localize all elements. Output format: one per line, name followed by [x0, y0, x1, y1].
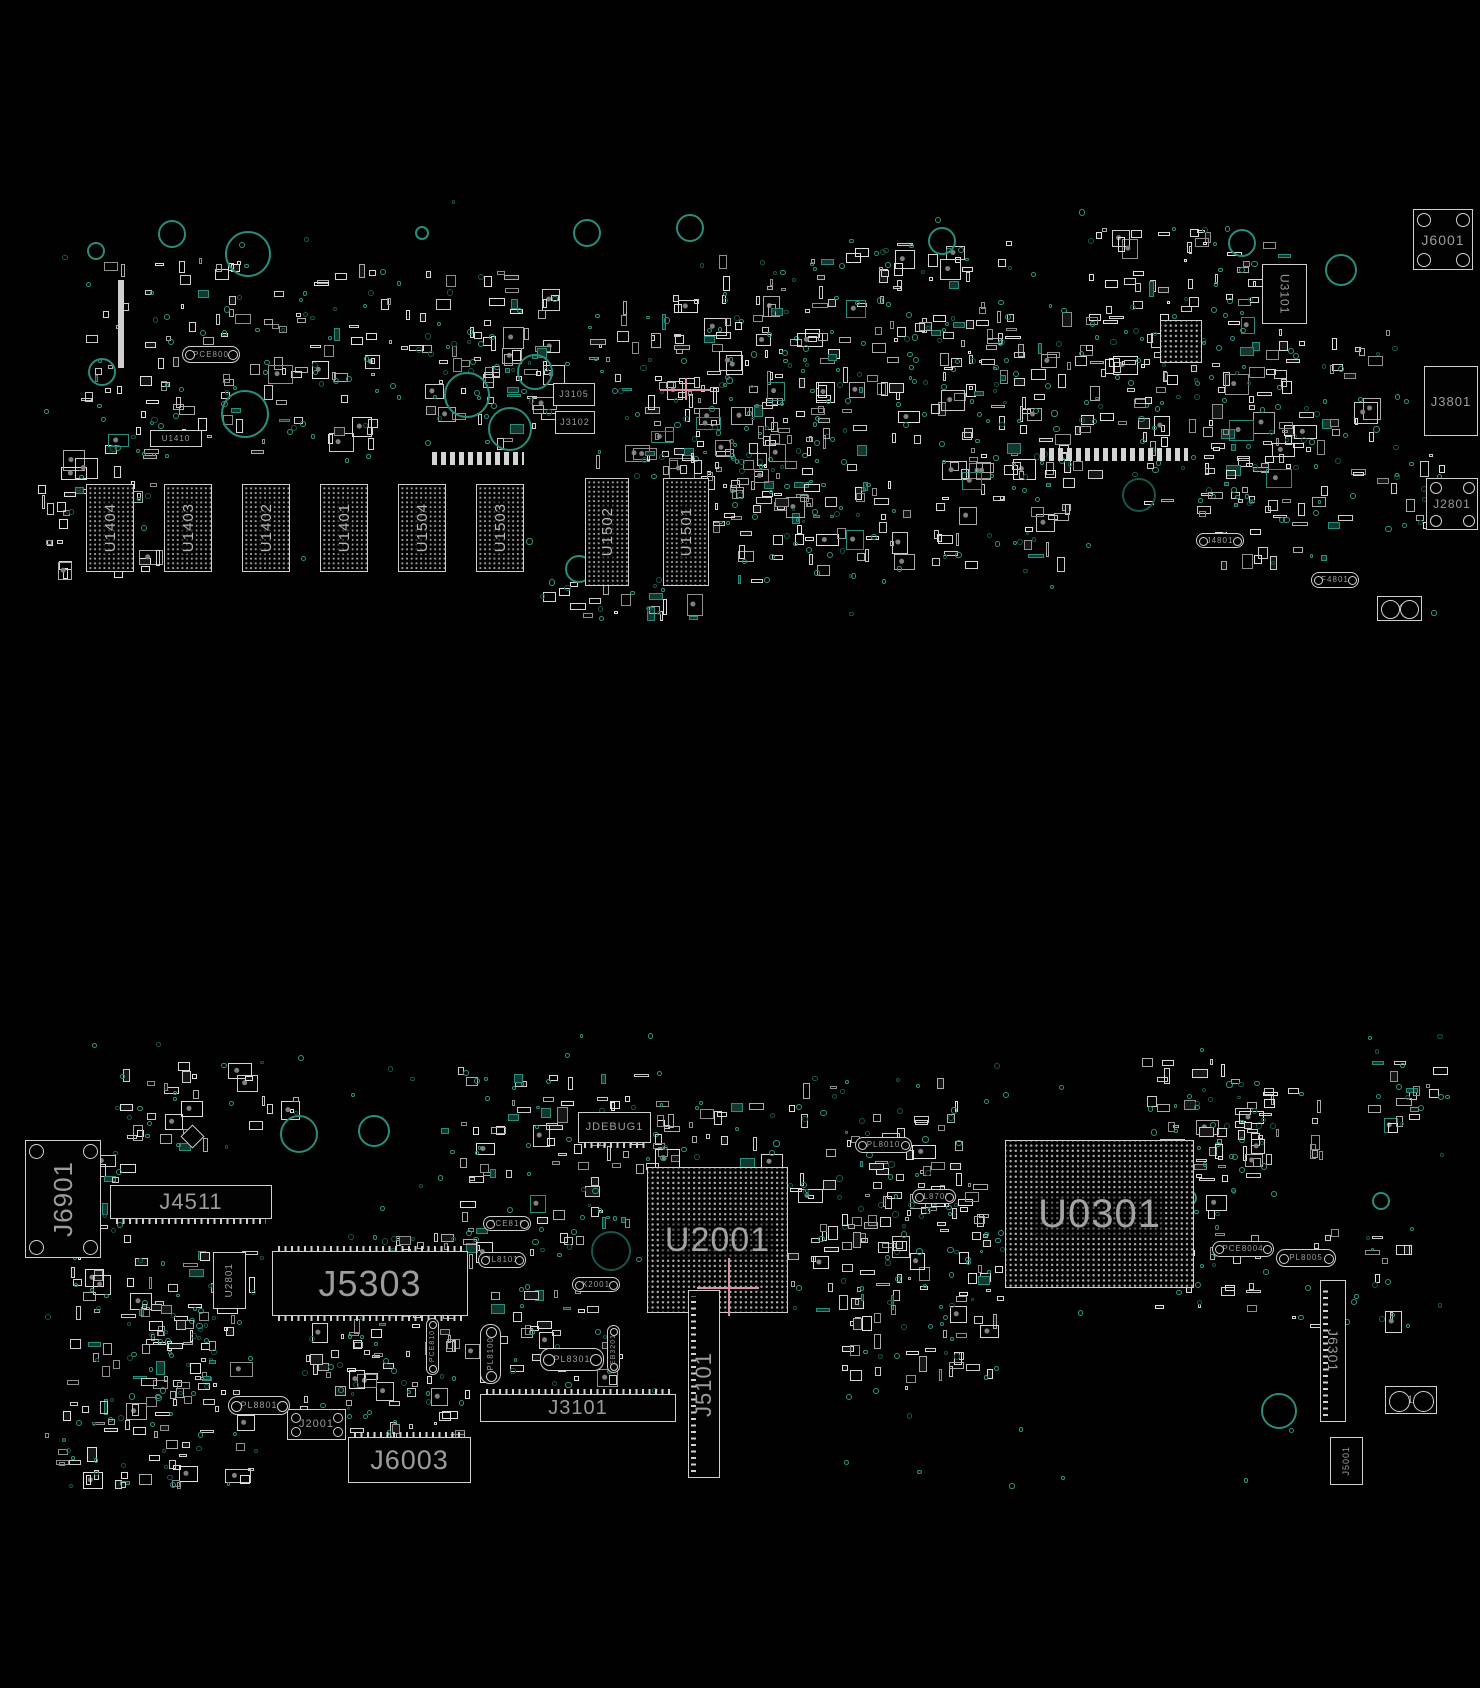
small-component: [198, 290, 209, 298]
small-component: [465, 1390, 471, 1399]
via: [193, 1307, 197, 1311]
small-component: [875, 327, 882, 335]
via: [937, 338, 942, 343]
via: [885, 1260, 891, 1266]
small-component: [596, 455, 600, 470]
via: [640, 365, 646, 371]
small-component: [789, 1105, 795, 1111]
small-component: [952, 1208, 957, 1219]
via: [366, 454, 370, 458]
bottom-board-view: J6901J4511U2801J5303JDEBUG1U2001U0301PL8…: [0, 0, 1480, 1688]
pin-hole: [83, 1144, 98, 1159]
via: [874, 251, 879, 256]
via: [367, 1410, 372, 1415]
via: [631, 1105, 636, 1110]
small-component: [296, 313, 302, 317]
small-component: [997, 1296, 1003, 1302]
via: [391, 1368, 397, 1374]
small-component: [549, 1125, 563, 1130]
via: [771, 468, 775, 472]
small-component: [956, 1333, 967, 1339]
via: [737, 492, 743, 498]
small-component: [59, 519, 68, 529]
via: [888, 1174, 893, 1179]
via: [796, 1104, 802, 1110]
via: [485, 440, 490, 445]
small-component: [865, 549, 869, 562]
small-component: [57, 502, 66, 512]
small-component: [489, 298, 505, 305]
small-component: [1265, 506, 1270, 513]
via: [494, 364, 500, 370]
via: [191, 1333, 197, 1339]
via: [397, 281, 402, 286]
via: [784, 484, 790, 490]
small-component: [462, 1212, 468, 1222]
small-component: [374, 1353, 383, 1357]
via: [1252, 1108, 1258, 1114]
small-component: [933, 315, 946, 322]
small-component: [574, 1144, 582, 1154]
via: [942, 460, 946, 464]
small-component: [813, 515, 819, 518]
small-component: [209, 1360, 216, 1364]
small-component: [1014, 352, 1025, 358]
small-component: [145, 342, 156, 348]
small-component: [1312, 1150, 1318, 1159]
refdes-label: J4511: [159, 1191, 222, 1213]
small-component: [1199, 511, 1207, 516]
small-component: [103, 1343, 113, 1356]
small-component: [1188, 279, 1193, 289]
small-component: [1276, 1129, 1279, 1137]
small-component: [431, 1388, 448, 1406]
via: [539, 1227, 544, 1232]
via: [840, 1089, 845, 1094]
small-component: [460, 1158, 467, 1168]
pin-hole: [1348, 576, 1357, 585]
via: [549, 579, 555, 585]
via: [116, 1169, 122, 1175]
small-component: [69, 1460, 81, 1464]
component-pce810: PCE810: [426, 1318, 439, 1375]
via: [943, 554, 948, 559]
small-component: [765, 350, 769, 358]
small-component: [524, 1291, 539, 1300]
small-component: [843, 367, 848, 383]
via: [419, 1184, 423, 1188]
via: [944, 1351, 948, 1355]
small-component: [1031, 507, 1044, 516]
via: [1373, 426, 1379, 432]
via: [546, 409, 552, 415]
pinstrip-shape: [432, 452, 524, 465]
small-component: [1409, 1114, 1420, 1120]
via: [595, 314, 600, 319]
via: [1056, 341, 1062, 347]
via: [815, 459, 819, 463]
small-component: [715, 503, 718, 510]
small-component: [974, 1316, 984, 1324]
via: [433, 395, 437, 399]
small-component: [341, 1334, 344, 1338]
small-component: [46, 540, 53, 545]
via: [592, 1188, 598, 1194]
small-component: [893, 1241, 907, 1251]
small-component: [846, 253, 860, 264]
small-component: [1354, 402, 1379, 423]
via: [260, 1061, 264, 1065]
small-component: [936, 503, 945, 512]
small-component: [125, 1420, 129, 1430]
via: [66, 1448, 71, 1453]
via: [886, 302, 891, 307]
via: [425, 333, 431, 339]
small-component: [1090, 361, 1104, 365]
mounting-hole: [928, 227, 956, 255]
small-component: [1292, 522, 1308, 527]
small-component: [235, 314, 251, 324]
via: [1215, 1225, 1219, 1229]
component-j3101: J3101: [480, 1394, 676, 1422]
via: [179, 387, 184, 392]
component-u1502: U1502: [585, 478, 629, 586]
via: [463, 1070, 469, 1076]
small-component: [1210, 1059, 1213, 1065]
pin-hole: [277, 1401, 288, 1412]
small-component: [1005, 336, 1021, 340]
via: [1270, 1123, 1276, 1129]
via: [302, 1370, 308, 1376]
small-component: [324, 345, 333, 357]
refdes-label: J6001: [1421, 233, 1464, 247]
small-component: [700, 1109, 714, 1119]
via: [1222, 398, 1227, 403]
small-component: [500, 1336, 508, 1343]
small-component: [497, 271, 506, 275]
via: [298, 1055, 304, 1061]
small-component: [1086, 345, 1092, 351]
refdes-label: X2001: [582, 1281, 610, 1289]
via: [836, 368, 840, 372]
small-component: [1353, 472, 1364, 476]
small-component: [156, 1361, 165, 1375]
via: [598, 1208, 603, 1213]
small-component: [978, 1276, 990, 1285]
small-component: [587, 1306, 599, 1313]
small-component: [142, 1344, 149, 1354]
component-u3101: U3101: [1262, 264, 1307, 324]
small-component: [873, 1182, 882, 1189]
via: [484, 414, 489, 419]
small-component: [538, 310, 546, 319]
small-component: [1067, 362, 1071, 370]
via: [1240, 328, 1245, 333]
via: [137, 1106, 143, 1112]
small-component: [1206, 1195, 1226, 1212]
small-component: [623, 1151, 630, 1159]
via: [1231, 487, 1237, 493]
small-component: [160, 1425, 169, 1431]
via: [892, 1211, 898, 1217]
small-component: [1208, 492, 1223, 498]
small-component: [691, 453, 694, 464]
small-component: [1189, 246, 1192, 254]
via: [156, 1042, 161, 1047]
small-component: [507, 394, 521, 397]
small-component: [940, 259, 960, 280]
small-component: [245, 1076, 253, 1081]
via: [839, 506, 843, 510]
small-component: [892, 532, 908, 554]
via: [1023, 569, 1027, 573]
via: [438, 1175, 443, 1180]
small-component: [570, 603, 586, 610]
via: [855, 301, 859, 305]
via: [887, 1300, 892, 1305]
small-component: [537, 1217, 548, 1224]
via: [173, 413, 179, 419]
small-component: [76, 1306, 80, 1320]
via: [426, 1391, 430, 1395]
small-component: [88, 1342, 102, 1348]
small-component: [203, 1376, 211, 1380]
small-component: [880, 1217, 891, 1227]
small-component: [910, 1253, 926, 1271]
component-pl8100: PL8100: [480, 1324, 501, 1384]
small-component: [1221, 1064, 1225, 1077]
small-component: [147, 1081, 155, 1086]
via: [1263, 1269, 1269, 1275]
small-component: [166, 1440, 178, 1449]
small-component: [412, 1382, 417, 1388]
via: [1275, 404, 1281, 410]
via: [970, 399, 975, 404]
via: [1239, 1137, 1245, 1143]
small-component: [872, 343, 885, 353]
small-component: [1263, 1092, 1278, 1096]
small-component: [694, 460, 702, 474]
via: [661, 588, 665, 592]
small-component: [806, 498, 813, 506]
small-component: [846, 530, 864, 550]
small-component: [654, 421, 661, 426]
small-component: [1279, 329, 1282, 336]
via: [227, 1482, 231, 1486]
small-component: [491, 1304, 505, 1315]
small-component: [663, 466, 669, 475]
small-component: [436, 299, 451, 310]
component-u1402: U1402: [242, 484, 290, 572]
small-component: [707, 371, 721, 375]
via: [380, 1206, 385, 1211]
small-component: [724, 513, 735, 518]
small-component: [262, 1096, 265, 1106]
small-component: [1344, 373, 1356, 379]
small-component: [751, 579, 763, 583]
small-component: [1103, 320, 1118, 323]
via: [907, 1413, 913, 1419]
component-pce800: PCE800: [182, 346, 240, 363]
via: [598, 606, 603, 611]
via: [150, 1422, 156, 1428]
small-component: [956, 1173, 962, 1186]
small-component: [723, 484, 727, 488]
via: [812, 509, 818, 515]
via: [1438, 1303, 1443, 1308]
component-hp404: HP404: [1377, 596, 1422, 621]
bar-shape: [118, 280, 124, 368]
via: [901, 1231, 907, 1237]
via: [532, 1239, 538, 1245]
pin-row: [278, 1246, 462, 1251]
via: [447, 289, 453, 295]
small-component: [484, 372, 499, 378]
pin-hole: [915, 1193, 924, 1202]
small-component: [168, 1284, 177, 1293]
via: [474, 1078, 480, 1084]
via: [520, 1304, 524, 1308]
via: [718, 327, 722, 331]
via: [971, 1298, 975, 1302]
small-component: [891, 1305, 896, 1315]
small-component: [154, 1431, 158, 1438]
small-component: [207, 435, 212, 439]
component-j5001: J5001: [1330, 1437, 1363, 1485]
small-component: [1224, 482, 1229, 486]
small-component: [997, 311, 1001, 323]
small-component: [1133, 271, 1144, 276]
pin-hole: [590, 1354, 602, 1366]
small-component: [412, 1324, 420, 1328]
small-component: [740, 531, 752, 536]
small-component: [943, 1330, 946, 1337]
via: [732, 502, 738, 508]
via: [904, 336, 910, 342]
via: [1153, 332, 1157, 336]
via: [374, 1342, 378, 1346]
via: [925, 1170, 931, 1176]
small-component: [763, 436, 769, 446]
small-component: [1057, 557, 1065, 572]
via: [86, 282, 91, 287]
via: [552, 296, 558, 302]
small-component: [754, 469, 769, 483]
refdes-label: EB3201: [610, 1334, 617, 1365]
small-component: [474, 357, 480, 360]
small-component: [853, 425, 867, 431]
small-component: [855, 1299, 859, 1305]
small-component: [469, 1254, 473, 1269]
small-component: [1204, 455, 1214, 459]
small-component: [1282, 430, 1288, 433]
via: [894, 1353, 900, 1359]
component-pl8101: PL8101: [478, 1252, 526, 1268]
refdes-label: J3102: [560, 418, 590, 427]
via: [769, 1150, 775, 1156]
via: [1132, 472, 1138, 478]
small-component: [842, 1214, 848, 1226]
via: [1195, 1282, 1201, 1288]
via: [519, 1287, 525, 1293]
via: [941, 384, 947, 390]
small-component: [876, 1283, 890, 1286]
via: [546, 1079, 551, 1084]
small-component: [199, 258, 203, 264]
small-component: [1372, 1236, 1384, 1239]
via: [1128, 380, 1134, 386]
small-component: [956, 1296, 967, 1301]
via: [660, 1103, 664, 1107]
pin-hole: [486, 1371, 497, 1382]
small-component: [696, 431, 700, 437]
via: [716, 430, 721, 435]
small-component: [434, 1233, 438, 1242]
small-component: [1433, 1067, 1448, 1074]
small-component: [839, 337, 850, 343]
via: [149, 1367, 154, 1372]
small-component: [537, 1321, 552, 1329]
component-j3105: J3105: [553, 383, 595, 406]
via: [165, 383, 169, 387]
component-u1403: U1403: [164, 484, 212, 572]
via: [581, 1187, 585, 1191]
via: [648, 358, 652, 362]
via: [1322, 364, 1326, 368]
via: [517, 308, 522, 313]
via: [946, 1205, 951, 1210]
via: [104, 1294, 109, 1299]
mounting-hole: [87, 242, 105, 260]
small-component: [190, 1363, 201, 1374]
pin-row: [486, 1389, 670, 1394]
small-component: [868, 1215, 877, 1225]
small-component: [1386, 330, 1390, 336]
small-component: [1382, 1258, 1388, 1264]
component-u1404: U1404: [86, 484, 134, 572]
small-component: [264, 385, 273, 401]
via: [780, 402, 784, 406]
small-component: [67, 1380, 80, 1385]
via: [1215, 1212, 1220, 1217]
small-component: [104, 1428, 118, 1432]
via: [951, 1107, 957, 1113]
small-component: [185, 1320, 194, 1330]
small-component: [326, 1372, 330, 1378]
refdes-label: U1404: [103, 501, 118, 554]
small-component: [409, 1424, 413, 1429]
component-u1501: U1501: [663, 478, 709, 586]
via: [863, 1350, 867, 1354]
mounting-hole: [517, 354, 553, 390]
via: [1239, 267, 1245, 273]
refdes-label: J6301: [1326, 1329, 1340, 1372]
small-component: [687, 594, 703, 616]
small-component: [38, 485, 46, 495]
via: [1008, 266, 1012, 270]
via: [260, 1256, 264, 1260]
via: [251, 1290, 256, 1295]
small-component: [1312, 1118, 1318, 1124]
small-component: [1246, 1173, 1261, 1178]
pin-hole: [1199, 537, 1208, 546]
refdes-label: U2801: [225, 1263, 235, 1297]
small-component: [872, 488, 877, 497]
via: [871, 534, 876, 539]
small-component: [1031, 369, 1047, 380]
small-component: [541, 1108, 551, 1118]
refdes-label: J2001: [299, 1419, 334, 1430]
